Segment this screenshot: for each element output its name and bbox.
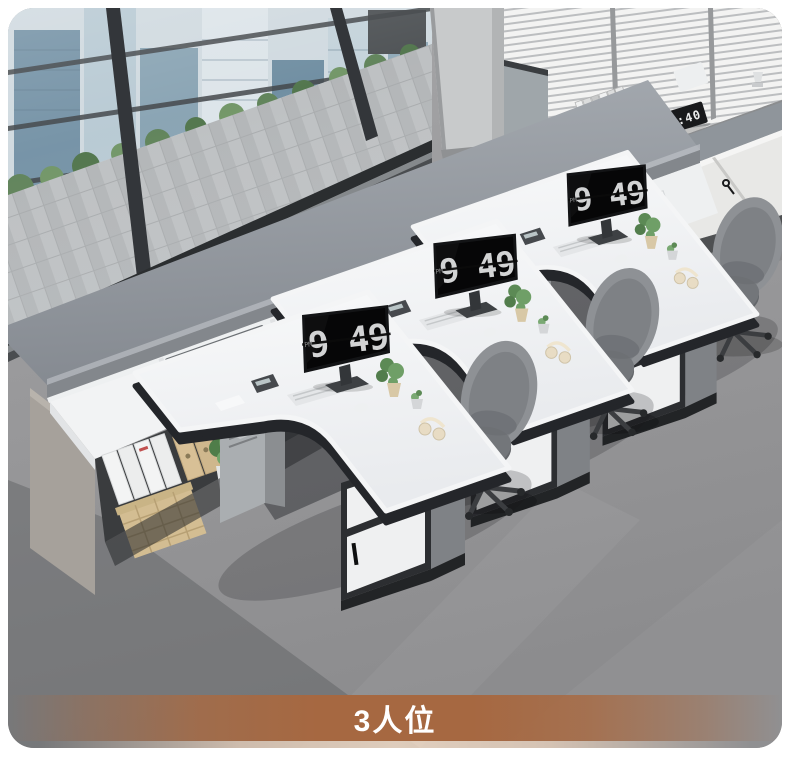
office-scene: 12:40 — [8, 8, 782, 748]
clock-period: PM — [435, 268, 444, 276]
product-banner: 3人位 — [8, 695, 782, 741]
banner-glow — [8, 741, 782, 748]
product-image: 12:40 — [0, 0, 790, 762]
seat-count-label: 3人位 — [354, 696, 437, 740]
clock-period: PM — [304, 340, 313, 349]
clock-period: PM — [569, 197, 577, 205]
office-scene-photo: 12:40 — [8, 8, 782, 748]
